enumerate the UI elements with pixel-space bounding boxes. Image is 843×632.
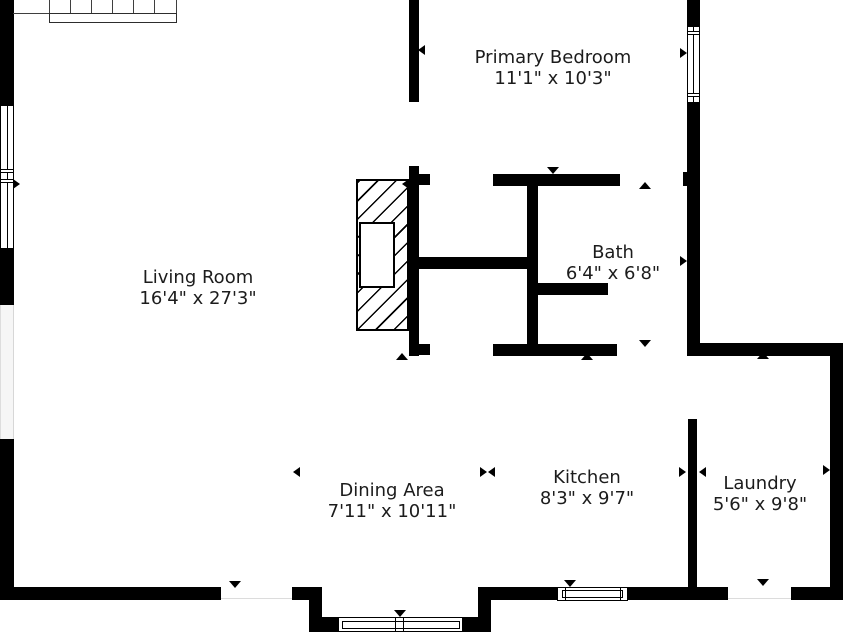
room-label-bath: Bath 6'4" x 6'8" bbox=[566, 242, 660, 284]
room-name: Living Room bbox=[139, 267, 256, 288]
opening-arrow-icon bbox=[488, 467, 495, 477]
wall-stub-top bbox=[409, 174, 430, 185]
window-kitchen bbox=[557, 587, 628, 601]
room-name: Bath bbox=[566, 242, 660, 263]
wall-bath-top bbox=[493, 174, 620, 186]
room-dimensions: 5'6" x 9'8" bbox=[713, 494, 807, 515]
room-name: Primary Bedroom bbox=[475, 47, 632, 68]
opening-arrow-icon bbox=[293, 467, 300, 477]
window-dining-bay bbox=[338, 617, 463, 632]
wall-bottom-dining-kitchen bbox=[478, 587, 558, 600]
bay-window-jamb-right bbox=[463, 617, 478, 632]
doorway-threshold bbox=[728, 598, 791, 599]
room-dimensions: 16'4" x 27'3" bbox=[139, 288, 256, 309]
door-arrow-icon bbox=[394, 610, 406, 617]
wall-bottom-living bbox=[0, 587, 221, 600]
wall-bay-left bbox=[309, 587, 322, 632]
door-arrow-icon bbox=[229, 581, 241, 588]
room-dimensions: 7'11" x 10'11" bbox=[328, 501, 457, 522]
stairs-landing bbox=[49, 13, 177, 23]
door-arrow-icon bbox=[396, 353, 408, 360]
doorway-threshold bbox=[221, 598, 292, 599]
wall-bath-left bbox=[527, 174, 538, 356]
door-arrow-icon bbox=[823, 465, 830, 475]
fireplace-firebox bbox=[359, 222, 395, 288]
door-arrow-icon bbox=[402, 179, 409, 189]
room-label-kitchen: Kitchen 8'3" x 9'7" bbox=[540, 467, 634, 509]
door-arrow-icon bbox=[679, 467, 686, 477]
room-label-primary-bedroom: Primary Bedroom 11'1" x 10'3" bbox=[475, 47, 632, 89]
door-arrow-icon bbox=[757, 352, 769, 359]
wall-right-stub bbox=[683, 172, 688, 186]
room-label-laundry: Laundry 5'6" x 9'8" bbox=[713, 473, 807, 515]
wall-bedroom-left-lower bbox=[409, 166, 419, 356]
room-label-living-room: Living Room 16'4" x 27'3" bbox=[139, 267, 256, 309]
window-living-left bbox=[0, 105, 14, 249]
door-arrow-icon bbox=[13, 179, 20, 189]
wall-left-bottom bbox=[0, 439, 14, 600]
wall-left-top bbox=[0, 0, 14, 107]
door-arrow-icon bbox=[639, 340, 651, 347]
wall-right-mid bbox=[687, 101, 700, 356]
window-bedroom-right bbox=[687, 26, 700, 103]
room-label-dining-area: Dining Area 7'11" x 10'11" bbox=[328, 480, 457, 522]
door-arrow-icon bbox=[564, 580, 576, 587]
room-dimensions: 6'4" x 6'8" bbox=[566, 263, 660, 284]
door-arrow-icon bbox=[757, 579, 769, 586]
door-arrow-icon bbox=[418, 45, 425, 55]
floorplan-canvas: Living Room 16'4" x 27'3" Primary Bedroo… bbox=[0, 0, 843, 632]
door-arrow-icon bbox=[680, 48, 687, 58]
room-dimensions: 8'3" x 9'7" bbox=[540, 488, 634, 509]
wall-bottom-kitchen bbox=[627, 587, 728, 600]
wall-right-top bbox=[687, 0, 700, 28]
wall-laundry-right bbox=[830, 343, 843, 600]
wall-left-pale-segment bbox=[0, 305, 14, 441]
opening-arrow-icon bbox=[480, 467, 487, 477]
room-dimensions: 11'1" x 10'3" bbox=[475, 68, 632, 89]
wall-stub-bottom bbox=[409, 344, 430, 355]
door-arrow-icon bbox=[680, 256, 687, 266]
wall-kitchen-laundry-divider bbox=[688, 419, 697, 588]
door-arrow-icon bbox=[581, 353, 593, 360]
room-name: Kitchen bbox=[540, 467, 634, 488]
fireplace bbox=[356, 179, 409, 331]
room-name: Laundry bbox=[713, 473, 807, 494]
wall-hall-crossbar bbox=[419, 257, 527, 269]
door-arrow-icon bbox=[639, 182, 651, 189]
wall-bath-bottom bbox=[493, 344, 617, 356]
bay-window-jamb-left bbox=[322, 617, 338, 632]
door-arrow-icon bbox=[529, 254, 536, 264]
wall-left-mid bbox=[0, 247, 14, 307]
door-arrow-icon bbox=[547, 167, 559, 174]
door-arrow-icon bbox=[699, 467, 706, 477]
wall-bath-inner bbox=[538, 283, 608, 295]
room-name: Dining Area bbox=[328, 480, 457, 501]
